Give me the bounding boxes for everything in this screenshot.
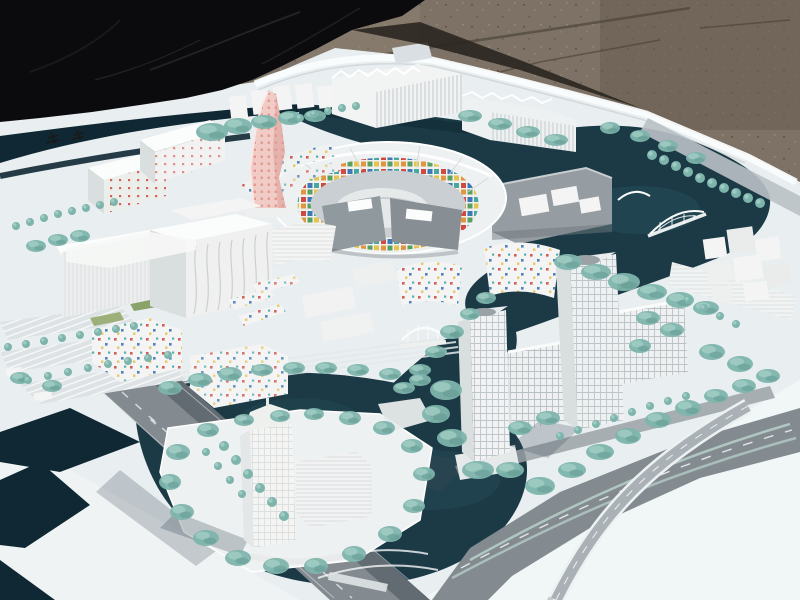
tree: [238, 490, 246, 498]
tree: [104, 360, 112, 368]
tree: [130, 322, 138, 330]
tree-cluster: [581, 264, 611, 280]
tree-cluster: [458, 110, 482, 122]
tree-cluster: [704, 389, 728, 403]
tree: [110, 198, 118, 206]
tree: [40, 337, 48, 345]
tree-cluster: [699, 344, 725, 360]
tree-cluster: [251, 115, 277, 129]
tree: [646, 402, 654, 410]
tree-cluster: [378, 526, 402, 542]
tree: [279, 511, 289, 521]
tree: [255, 483, 265, 493]
tree-cluster: [193, 530, 219, 546]
tree-cluster: [197, 423, 219, 437]
tree-cluster: [159, 474, 181, 490]
tree-cluster: [188, 373, 212, 387]
forecourt-texture: [268, 223, 336, 266]
tree-cluster: [234, 414, 254, 426]
tree-cluster: [558, 462, 586, 478]
tree: [683, 167, 693, 177]
tree-cluster: [304, 408, 324, 420]
tree: [112, 325, 120, 333]
tree: [243, 469, 253, 479]
tree: [24, 376, 32, 384]
tree: [671, 161, 681, 171]
dotted-facade: [484, 242, 560, 298]
tree-cluster: [158, 381, 182, 395]
tree-cluster: [430, 380, 462, 400]
tree: [731, 188, 741, 198]
tree: [707, 178, 717, 188]
tree: [68, 207, 76, 215]
tree: [574, 426, 582, 434]
tree-cluster: [196, 123, 228, 141]
tree: [743, 193, 753, 203]
tree-cluster: [536, 411, 560, 425]
tree-cluster: [48, 234, 68, 246]
tree: [96, 201, 104, 209]
tree: [695, 173, 705, 183]
tree: [202, 448, 210, 456]
tree-cluster: [42, 380, 62, 392]
tree: [659, 155, 669, 165]
model-photo: [0, 0, 800, 600]
tree-cluster: [675, 400, 701, 416]
tree-cluster: [732, 379, 756, 393]
tree-cluster: [525, 477, 555, 495]
tree-cluster: [379, 368, 401, 380]
tree: [700, 304, 708, 312]
tree: [219, 441, 229, 451]
tree: [82, 204, 90, 212]
tree-cluster: [225, 550, 251, 566]
tree-cluster: [476, 292, 496, 304]
tree-cluster: [304, 558, 328, 574]
tree: [144, 354, 152, 362]
tree: [226, 476, 234, 484]
tree-cluster: [413, 467, 435, 481]
tree-cluster: [496, 462, 524, 478]
tree: [12, 222, 20, 230]
tree-cluster: [401, 439, 423, 453]
tree-cluster: [462, 461, 494, 479]
tree: [647, 150, 657, 160]
tree: [164, 351, 172, 359]
scene-canvas: [0, 0, 800, 600]
dotted-facade: [396, 262, 462, 306]
tree-cluster: [26, 240, 46, 252]
tree-cluster: [425, 346, 447, 358]
tree: [94, 328, 102, 336]
tree-cluster: [600, 122, 620, 134]
tree-cluster: [373, 421, 395, 435]
tower-spire: [266, 398, 269, 407]
tree-cluster: [608, 273, 640, 291]
tree: [324, 107, 332, 115]
tree-cluster: [315, 362, 337, 374]
tree: [628, 408, 636, 416]
tree: [84, 364, 92, 372]
tree: [267, 497, 277, 507]
tree-cluster: [615, 428, 641, 444]
tree-cluster: [440, 325, 464, 339]
tree: [54, 210, 62, 218]
tree: [58, 334, 66, 342]
window-grid: [470, 310, 510, 462]
tree-cluster: [645, 412, 671, 428]
tree-cluster: [586, 444, 614, 460]
tree: [310, 110, 318, 118]
tree-cluster: [660, 323, 684, 337]
tree-cluster: [403, 499, 425, 513]
tree-cluster: [283, 362, 305, 374]
tree-cluster: [347, 364, 369, 376]
tree: [664, 397, 672, 405]
tree-cluster: [658, 140, 678, 152]
tree: [352, 102, 360, 110]
tree-cluster: [460, 308, 480, 320]
tree: [338, 104, 346, 112]
tree-cluster: [224, 118, 252, 134]
tree-cluster: [339, 411, 361, 425]
tree: [44, 372, 52, 380]
tree: [76, 331, 84, 339]
tree: [4, 343, 12, 351]
tree-cluster: [422, 405, 450, 423]
tree: [296, 114, 304, 122]
tree-cluster: [263, 558, 289, 574]
tree-cluster: [544, 134, 568, 146]
tree: [755, 198, 765, 208]
tree-cluster: [636, 311, 660, 325]
annex-texture: [296, 452, 372, 528]
tree-cluster: [630, 130, 650, 142]
tree-cluster: [437, 429, 467, 447]
tree: [716, 312, 724, 320]
tree-cluster: [218, 367, 242, 381]
tree-cluster: [637, 284, 667, 300]
tree-cluster: [629, 339, 651, 353]
tree-cluster: [554, 254, 582, 270]
tree-cluster: [270, 410, 290, 422]
tree-cluster: [756, 369, 780, 383]
tree-cluster: [516, 126, 540, 138]
tree-cluster: [251, 364, 273, 376]
tree: [124, 357, 132, 365]
tree: [682, 392, 690, 400]
tree: [64, 368, 72, 376]
tree: [22, 340, 30, 348]
tree-cluster: [686, 152, 706, 164]
tree-cluster: [70, 230, 90, 242]
tree: [732, 320, 740, 328]
tree-cluster: [166, 444, 190, 460]
tree-cluster: [488, 118, 512, 130]
tree: [40, 214, 48, 222]
tree: [719, 183, 729, 193]
tree-cluster: [727, 356, 753, 372]
tree-cluster: [170, 504, 194, 520]
tree: [26, 218, 34, 226]
tree: [214, 462, 222, 470]
tree: [556, 432, 564, 440]
tree-cluster: [409, 374, 431, 386]
tree: [231, 455, 241, 465]
tree-cluster: [508, 421, 532, 435]
tree-cluster: [342, 546, 366, 562]
tree: [610, 414, 618, 422]
tree: [592, 420, 600, 428]
tree: [684, 296, 692, 304]
